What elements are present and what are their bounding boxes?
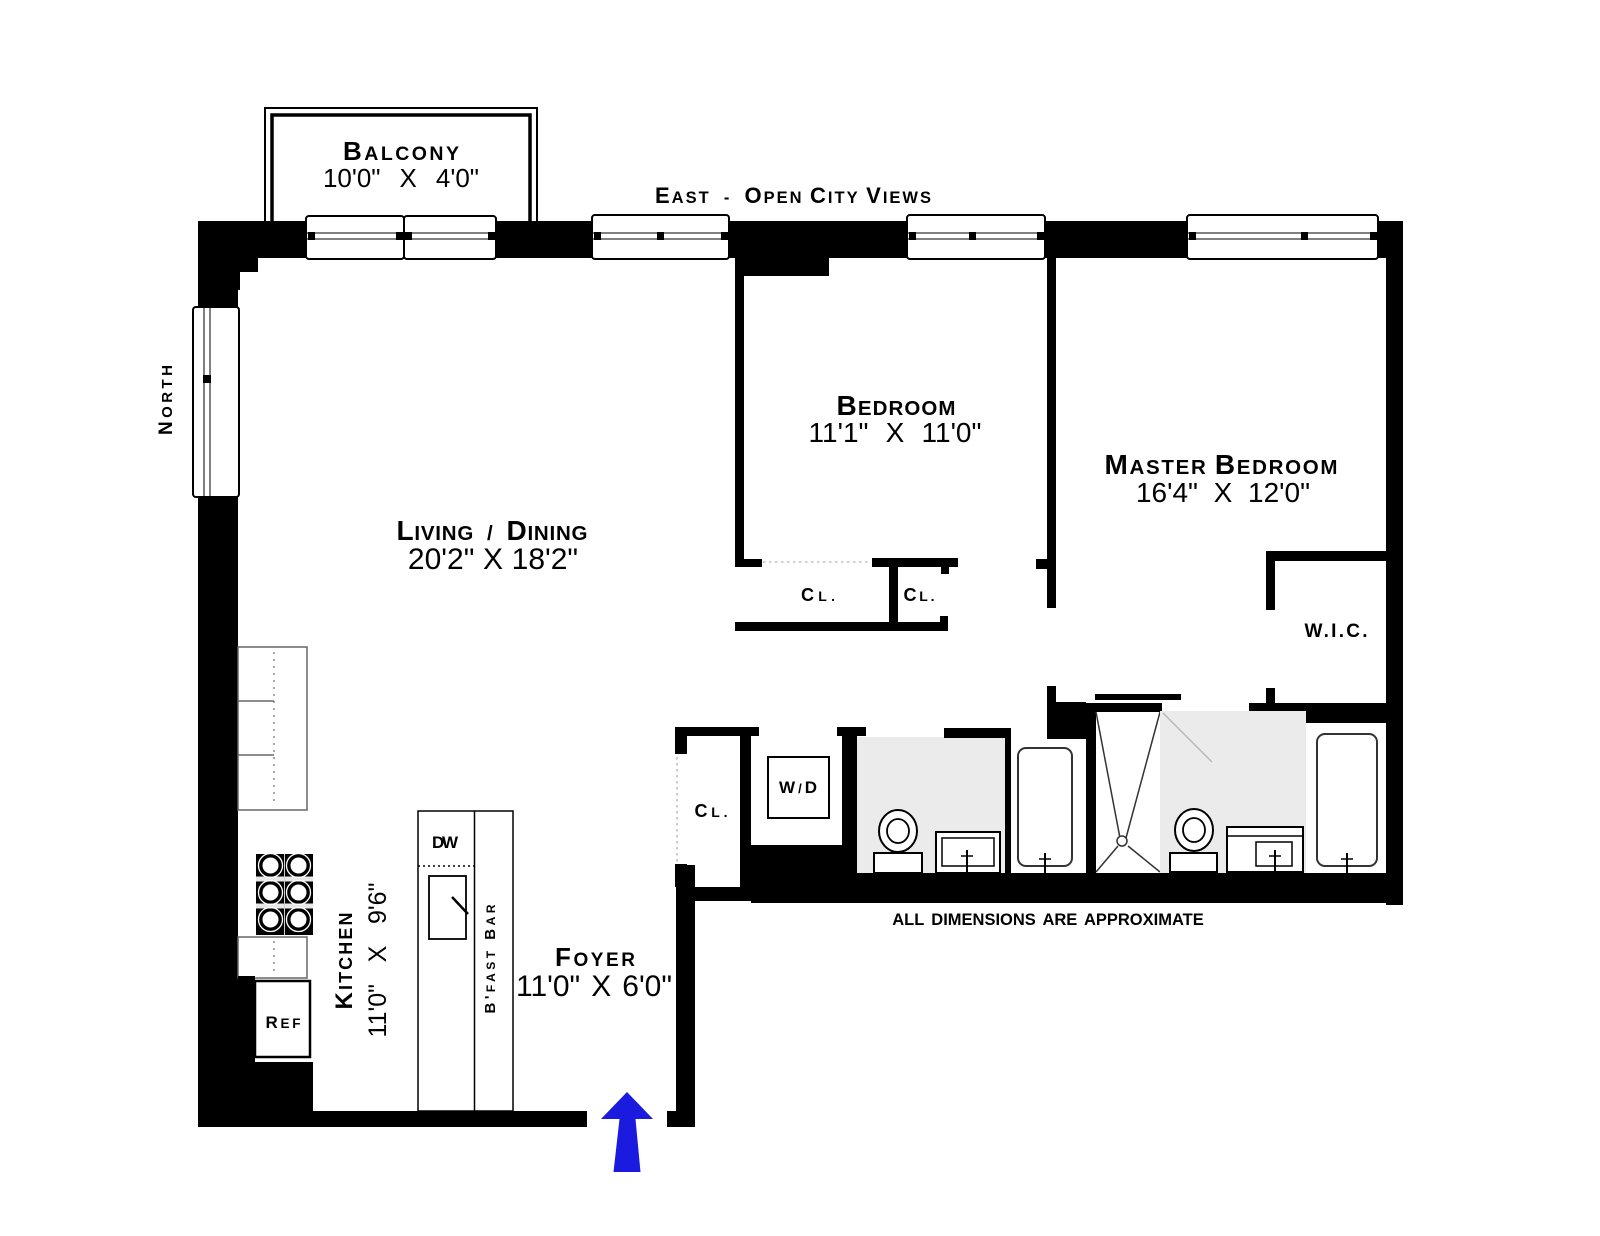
svg-text:16'4" X 12'0": 16'4" X 12'0" [1136, 477, 1310, 508]
svg-text:11'0" X 9'6": 11'0" X 9'6" [364, 883, 392, 1038]
svg-text:11'0" X 6'0": 11'0" X 6'0" [516, 970, 672, 1003]
svg-text:W.I.C.: W.I.C. [1305, 621, 1368, 642]
svg-text:DW: DW [432, 833, 459, 852]
svg-text:20'2" X 18'2": 20'2" X 18'2" [408, 543, 578, 576]
svg-text:CL.: CL. [904, 585, 935, 605]
svg-text:REF: REF [266, 1013, 301, 1032]
svg-text:W/D: W/D [779, 778, 817, 797]
svg-text:B'FAST BAR: B'FAST BAR [482, 904, 499, 1013]
svg-text:11'1" X 11'0": 11'1" X 11'0" [809, 417, 982, 448]
svg-text:10'0" X 4'0": 10'0" X 4'0" [323, 163, 479, 193]
svg-text:NORTH: NORTH [156, 365, 177, 435]
svg-text:ALL DIMENSIONS ARE APPROXIMATE: ALL DIMENSIONS ARE APPROXIMATE [892, 911, 1204, 929]
